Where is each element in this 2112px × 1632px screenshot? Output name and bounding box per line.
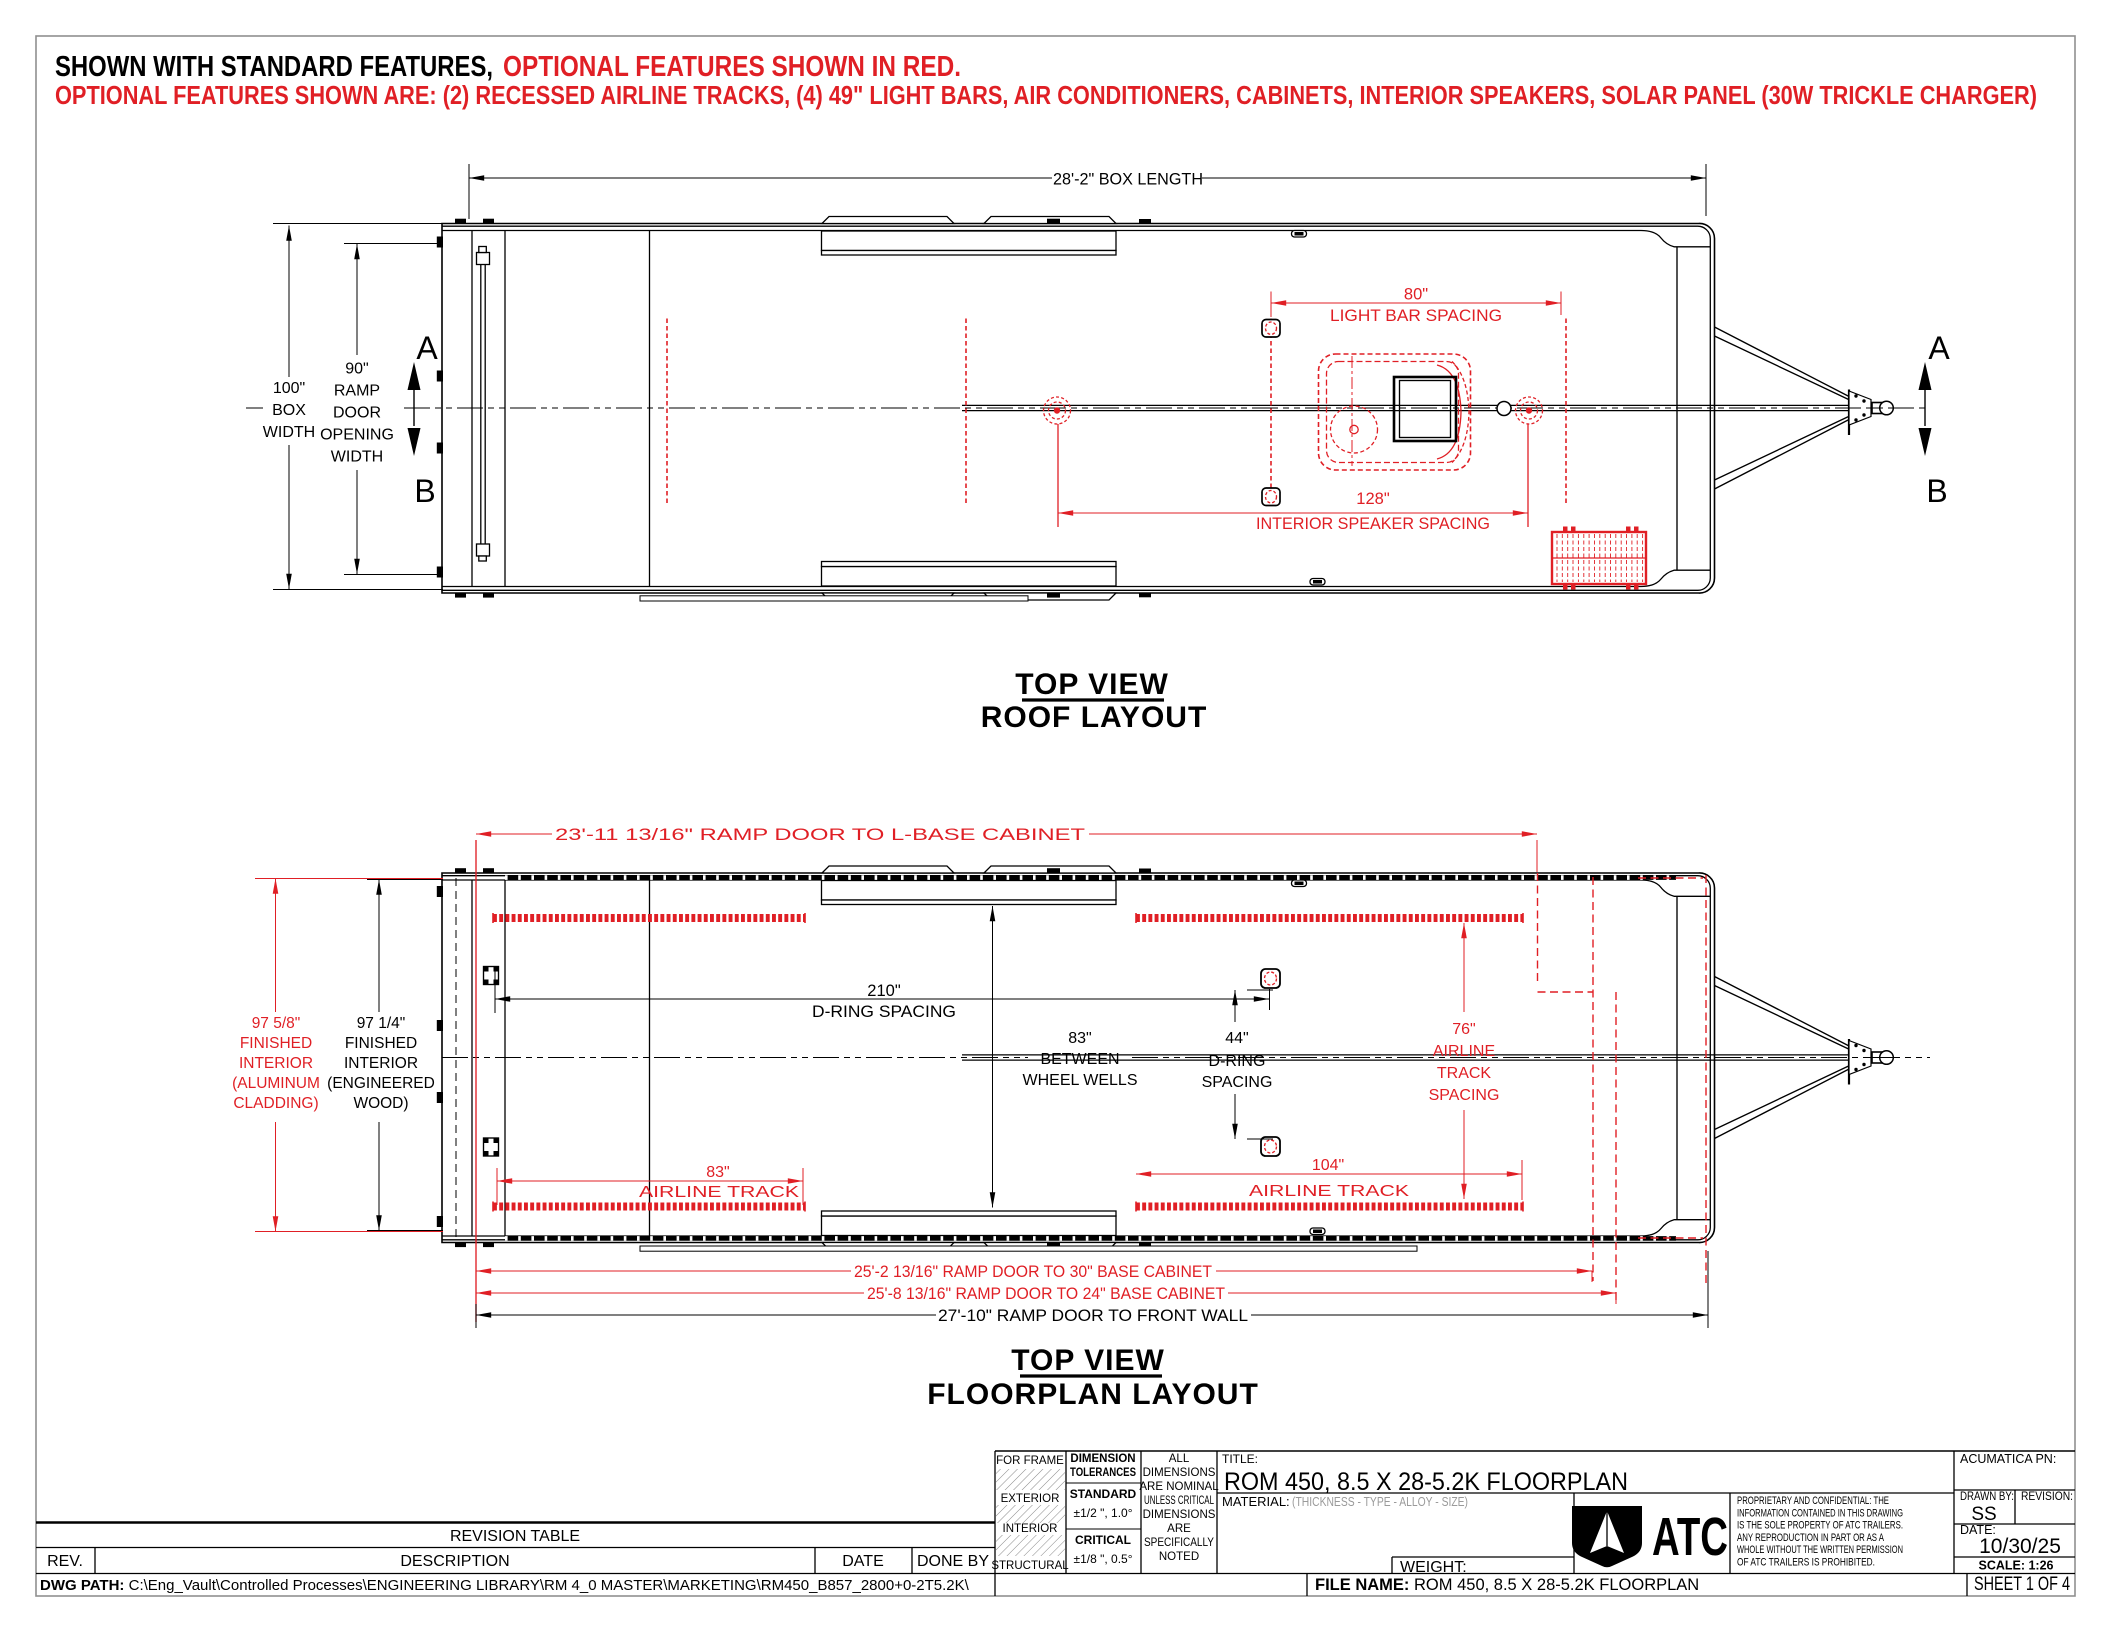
svg-text:±1/2 ", 1.0°: ±1/2 ", 1.0° bbox=[1073, 1506, 1132, 1520]
svg-text:WHOLE WITHOUT THE WRITTEN PERM: WHOLE WITHOUT THE WRITTEN PERMISSION bbox=[1737, 1544, 1903, 1556]
svg-text:WEIGHT:: WEIGHT: bbox=[1400, 1559, 1467, 1576]
svg-text:DATE: DATE bbox=[842, 1553, 883, 1570]
svg-text:10/30/25: 10/30/25 bbox=[1979, 1535, 2061, 1558]
svg-text:RAMP: RAMP bbox=[334, 383, 380, 400]
svg-text:97 1/4": 97 1/4" bbox=[357, 1015, 406, 1032]
svg-text:PROPRIETARY AND CONFIDENTIAL:: PROPRIETARY AND CONFIDENTIAL: THE bbox=[1737, 1495, 1889, 1507]
svg-text:FINISHED: FINISHED bbox=[345, 1035, 417, 1052]
svg-text:SHOWN WITH STANDARD FEATURES,: SHOWN WITH STANDARD FEATURES, bbox=[55, 51, 493, 83]
svg-text:(THICKNESS - TYPE - ALLOY - SI: (THICKNESS - TYPE - ALLOY - SIZE) bbox=[1292, 1495, 1468, 1509]
svg-text:76": 76" bbox=[1452, 1021, 1475, 1038]
svg-text:SPECIFICALLY: SPECIFICALLY bbox=[1144, 1537, 1214, 1549]
svg-text:INTERIOR: INTERIOR bbox=[1003, 1523, 1058, 1535]
svg-text:TRACK: TRACK bbox=[1437, 1065, 1492, 1082]
svg-text:DIMENSIONS: DIMENSIONS bbox=[1143, 1509, 1216, 1521]
svg-text:EXTERIOR: EXTERIOR bbox=[1001, 1493, 1060, 1505]
svg-text:INTERIOR: INTERIOR bbox=[344, 1055, 418, 1072]
svg-text:23'-11 13/16" RAMP DOOR TO L-B: 23'-11 13/16" RAMP DOOR TO L-BASE CABINE… bbox=[555, 825, 1085, 844]
svg-text:(ENGINEERED: (ENGINEERED bbox=[327, 1075, 435, 1092]
svg-text:ARE: ARE bbox=[1167, 1523, 1191, 1535]
svg-text:FOR FRAME: FOR FRAME bbox=[996, 1455, 1064, 1467]
svg-text:INTERIOR: INTERIOR bbox=[239, 1055, 313, 1072]
svg-text:97 5/8": 97 5/8" bbox=[252, 1015, 301, 1032]
svg-text:TOP VIEW: TOP VIEW bbox=[1011, 1344, 1165, 1377]
svg-text:D-RING: D-RING bbox=[1209, 1053, 1266, 1070]
svg-text:A: A bbox=[1928, 330, 1950, 366]
svg-text:LIGHT BAR SPACING: LIGHT BAR SPACING bbox=[1330, 307, 1502, 325]
svg-text:DESCRIPTION: DESCRIPTION bbox=[400, 1553, 509, 1570]
svg-text:28'-2" BOX LENGTH: 28'-2" BOX LENGTH bbox=[1053, 170, 1203, 189]
svg-text:SPACING: SPACING bbox=[1202, 1074, 1273, 1091]
svg-text:SS: SS bbox=[1971, 1504, 1996, 1525]
svg-text:TOP VIEW: TOP VIEW bbox=[1015, 668, 1169, 701]
svg-text:DWG PATH: C:\Eng_Vault\Control: DWG PATH: C:\Eng_Vault\Controlled Proces… bbox=[40, 1577, 970, 1594]
svg-text:SCALE: 1:26: SCALE: 1:26 bbox=[1978, 1559, 2053, 1573]
svg-text:AIRLINE TRACK: AIRLINE TRACK bbox=[1249, 1183, 1409, 1200]
svg-text:REVISION:: REVISION: bbox=[2021, 1489, 2073, 1503]
svg-text:FLOORPLAN LAYOUT: FLOORPLAN LAYOUT bbox=[927, 1378, 1259, 1411]
svg-text:A: A bbox=[416, 330, 438, 366]
svg-text:B: B bbox=[1926, 473, 1947, 509]
svg-text:OPTIONAL FEATURES SHOWN ARE: (: OPTIONAL FEATURES SHOWN ARE: (2) RECESSE… bbox=[55, 80, 2037, 110]
svg-text:±1/8 ", 0.5°: ±1/8 ", 0.5° bbox=[1073, 1552, 1132, 1566]
svg-text:TITLE:: TITLE: bbox=[1222, 1452, 1258, 1466]
svg-text:27'-10" RAMP DOOR TO FRONT WA: 27'-10" RAMP DOOR TO FRONT WALL bbox=[938, 1306, 1248, 1325]
svg-text:STRUCTURAL: STRUCTURAL bbox=[991, 1560, 1069, 1572]
svg-text:REV.: REV. bbox=[47, 1553, 83, 1570]
svg-text:INFORMATION CONTAINED IN THIS: INFORMATION CONTAINED IN THIS DRAWING bbox=[1737, 1507, 1903, 1519]
svg-text:100": 100" bbox=[273, 380, 305, 397]
svg-text:ATC: ATC bbox=[1652, 1507, 1728, 1567]
svg-text:DONE BY: DONE BY bbox=[917, 1553, 989, 1570]
svg-text:IS THE SOLE PROPERTY OF ATC TR: IS THE SOLE PROPERTY OF ATC TRAILERS. bbox=[1737, 1520, 1903, 1532]
svg-text:SPACING: SPACING bbox=[1429, 1087, 1500, 1104]
svg-text:ALL: ALL bbox=[1169, 1453, 1190, 1465]
svg-text:DRAWN BY:: DRAWN BY: bbox=[1960, 1489, 2014, 1503]
svg-text:25'-8 13/16" RAMP DOOR TO 24": 25'-8 13/16" RAMP DOOR TO 24" BASE CABIN… bbox=[867, 1284, 1225, 1303]
svg-text:NOTED: NOTED bbox=[1159, 1551, 1199, 1563]
svg-text:25'-2 13/16" RAMP DOOR TO 30": 25'-2 13/16" RAMP DOOR TO 30" BASE CABIN… bbox=[854, 1262, 1212, 1281]
svg-text:WIDTH: WIDTH bbox=[263, 424, 315, 441]
svg-text:FINISHED: FINISHED bbox=[240, 1035, 312, 1052]
svg-text:AIRLINE TRACK: AIRLINE TRACK bbox=[639, 1184, 799, 1201]
svg-text:D-RING SPACING: D-RING SPACING bbox=[812, 1003, 956, 1021]
svg-text:ANY REPRODUCTION IN PART OR AS: ANY REPRODUCTION IN PART OR AS A bbox=[1737, 1532, 1885, 1544]
svg-text:WIDTH: WIDTH bbox=[331, 449, 383, 466]
svg-text:OPENING: OPENING bbox=[320, 427, 394, 444]
svg-text:90": 90" bbox=[345, 361, 368, 378]
svg-text:ARE NOMINAL: ARE NOMINAL bbox=[1139, 1481, 1219, 1493]
svg-text:83": 83" bbox=[706, 1164, 729, 1181]
svg-text:CRITICAL: CRITICAL bbox=[1075, 1533, 1131, 1547]
svg-text:CLADDING): CLADDING) bbox=[233, 1095, 318, 1112]
svg-text:FILE NAME: ROM 450, 8.5 X 28-5: FILE NAME: ROM 450, 8.5 X 28-5.2K FLOORP… bbox=[1315, 1576, 1699, 1594]
svg-text:BOX: BOX bbox=[272, 402, 306, 419]
svg-text:ROM 450, 8.5 X 28-5.2K FLOORPL: ROM 450, 8.5 X 28-5.2K FLOORPLAN bbox=[1224, 1468, 1628, 1496]
svg-text:B: B bbox=[414, 473, 435, 509]
svg-text:WHEEL WELLS: WHEEL WELLS bbox=[1023, 1072, 1138, 1089]
svg-text:DIMENSION: DIMENSION bbox=[1070, 1453, 1135, 1465]
svg-text:REVISION TABLE: REVISION TABLE bbox=[450, 1528, 580, 1545]
svg-text:WOOD): WOOD) bbox=[353, 1095, 408, 1112]
svg-text:STANDARD: STANDARD bbox=[1070, 1487, 1137, 1501]
svg-text:MATERIAL:: MATERIAL: bbox=[1222, 1494, 1290, 1509]
svg-text:210": 210" bbox=[867, 982, 901, 1000]
svg-text:OPTIONAL FEATURES SHOWN IN RED: OPTIONAL FEATURES SHOWN IN RED. bbox=[503, 51, 961, 83]
svg-text:44": 44" bbox=[1225, 1030, 1248, 1047]
svg-text:(ALUMINUM: (ALUMINUM bbox=[232, 1075, 320, 1092]
svg-text:ROOF LAYOUT: ROOF LAYOUT bbox=[981, 701, 1208, 734]
svg-text:128": 128" bbox=[1356, 490, 1390, 508]
svg-text:BETWEEN: BETWEEN bbox=[1040, 1051, 1119, 1068]
svg-text:83": 83" bbox=[1068, 1030, 1091, 1047]
svg-text:SHEET 1 OF 4: SHEET 1 OF 4 bbox=[1974, 1573, 2070, 1595]
svg-text:DIMENSIONS: DIMENSIONS bbox=[1143, 1467, 1216, 1479]
svg-text:UNLESS CRITICAL: UNLESS CRITICAL bbox=[1144, 1495, 1214, 1507]
svg-text:OF ATC TRAILERS IS PROHIBITED.: OF ATC TRAILERS IS PROHIBITED. bbox=[1737, 1557, 1875, 1569]
svg-text:ACUMATICA PN:: ACUMATICA PN: bbox=[1960, 1452, 2056, 1466]
svg-text:DOOR: DOOR bbox=[333, 405, 381, 422]
svg-text:80": 80" bbox=[1404, 286, 1428, 304]
svg-text:104": 104" bbox=[1312, 1157, 1344, 1174]
svg-text:TOLERANCES: TOLERANCES bbox=[1070, 1467, 1136, 1479]
svg-text:INTERIOR SPEAKER SPACING: INTERIOR SPEAKER SPACING bbox=[1256, 515, 1490, 533]
svg-text:AIRLINE: AIRLINE bbox=[1433, 1043, 1495, 1060]
